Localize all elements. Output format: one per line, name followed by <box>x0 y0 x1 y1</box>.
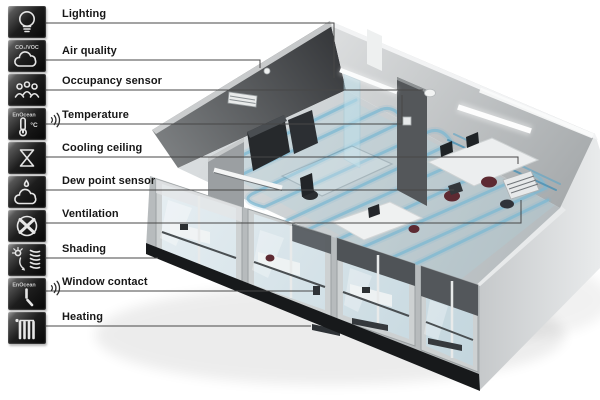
svg-text:CO₂/VOC: CO₂/VOC <box>15 45 39 51</box>
label-cooling-ceiling: Cooling ceiling <box>62 142 142 154</box>
temperature-sensor-box <box>403 117 411 125</box>
temperature-tile: EnOcean °C <box>8 108 46 140</box>
occupancy-tile <box>8 74 46 106</box>
label-heating: Heating <box>62 311 103 323</box>
window-contact-sensor <box>313 286 320 295</box>
svg-text:EnOcean: EnOcean <box>12 283 35 289</box>
heating-tile <box>8 312 46 344</box>
cooling-ceiling-tile <box>8 142 46 174</box>
label-temperature: Temperature <box>62 109 129 121</box>
valve-hourglass-icon <box>8 142 46 174</box>
label-lighting: Lighting <box>62 8 106 20</box>
air-quality-sensor-dot <box>264 68 270 74</box>
leader-line-air-quality <box>46 60 260 68</box>
window-handle-icon: EnOcean <box>8 278 46 310</box>
cloud-icon: CO₂/VOC <box>8 40 46 72</box>
thermometer-icon: EnOcean °C <box>8 108 46 140</box>
label-window-contact: Window contact <box>62 276 148 288</box>
air-quality-tile: CO₂/VOC <box>8 40 46 72</box>
fan-icon <box>8 210 46 242</box>
shading-tile <box>8 244 46 276</box>
label-shading: Shading <box>62 243 106 255</box>
room-automation-diagram: Lighting CO₂/VOC Air quality Occupancy s… <box>0 0 600 400</box>
building-3d-render <box>0 0 600 400</box>
label-ventilation: Ventilation <box>62 208 119 220</box>
svg-text:°C: °C <box>30 121 38 129</box>
lighting-tile <box>8 6 46 38</box>
dew-point-tile <box>8 176 46 208</box>
window-contact-tile: EnOcean <box>8 278 46 310</box>
wireless-signal-icon <box>48 108 62 137</box>
wireless-signal-icon <box>48 276 62 305</box>
cloud-droplet-icon <box>8 176 46 208</box>
ventilation-tile <box>8 210 46 242</box>
sun-blinds-icon <box>8 244 46 276</box>
label-air-quality: Air quality <box>62 45 117 57</box>
occupancy-sensor-dot <box>425 89 436 97</box>
people-group-icon <box>8 74 46 106</box>
radiator-icon <box>8 312 46 344</box>
label-dew-point: Dew point sensor <box>62 175 155 187</box>
light-bulb-icon <box>8 6 46 38</box>
label-occupancy: Occupancy sensor <box>62 75 162 87</box>
